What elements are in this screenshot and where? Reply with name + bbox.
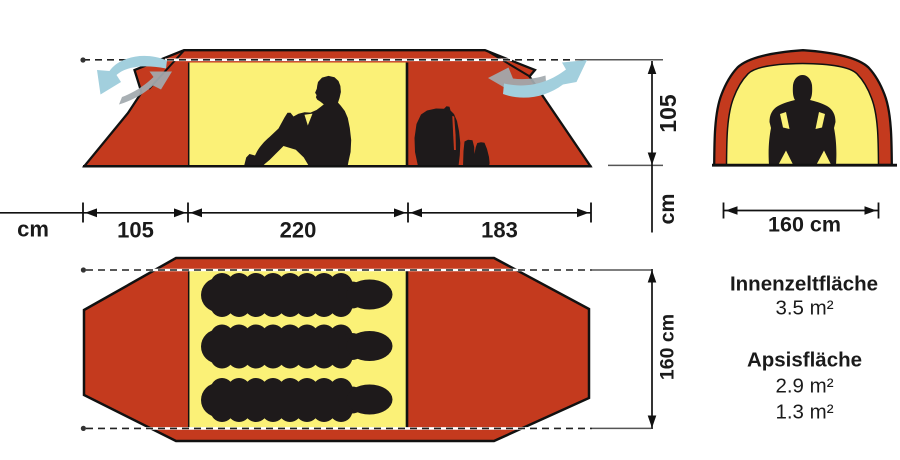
svg-text:Apsisfläche: Apsisfläche — [747, 349, 862, 372]
svg-text:1.3 m²: 1.3 m² — [775, 401, 833, 424]
svg-text:105: 105 — [117, 217, 154, 242]
svg-text:cm: cm — [17, 217, 49, 242]
svg-text:160 cm: 160 cm — [657, 314, 679, 380]
svg-text:2.9 m²: 2.9 m² — [775, 375, 833, 398]
svg-text:3.5 m²: 3.5 m² — [775, 297, 833, 320]
svg-text:cm: cm — [655, 193, 679, 224]
svg-text:183: 183 — [481, 217, 518, 242]
svg-text:Innenzeltfläche: Innenzeltfläche — [730, 273, 878, 296]
svg-text:105: 105 — [655, 94, 681, 133]
svg-text:220: 220 — [280, 217, 317, 242]
svg-text:160 cm: 160 cm — [768, 213, 841, 237]
